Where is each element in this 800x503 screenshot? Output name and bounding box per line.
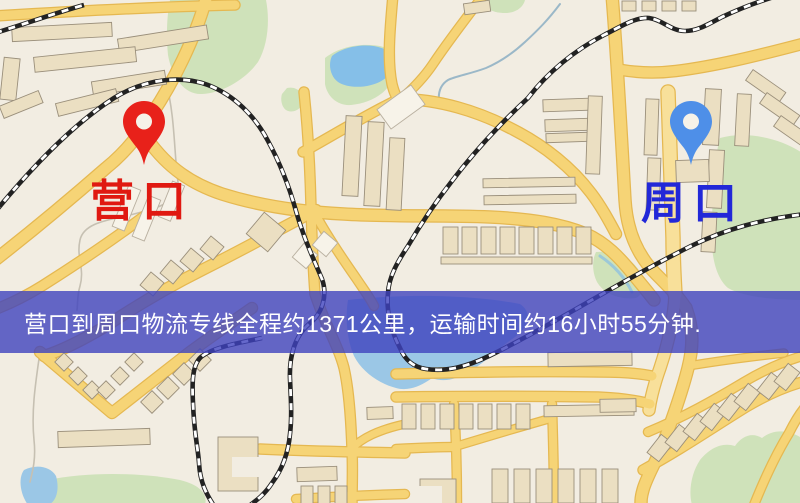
route-info-text: 营口到周口物流专线全程约1371公里，运输时间约16小时55分钟. bbox=[24, 305, 701, 339]
destination-pin-icon[interactable] bbox=[669, 100, 713, 168]
map-view: 营口 周口 营口到周口物流专线全程约1371公里，运输时间约16小时55分钟. bbox=[0, 0, 800, 503]
origin-pin-graphic bbox=[122, 100, 166, 168]
destination-pin-graphic bbox=[669, 100, 713, 168]
origin-pin-icon[interactable] bbox=[122, 100, 166, 168]
map-canvas[interactable] bbox=[0, 0, 800, 503]
destination-city-label: 周口 bbox=[641, 182, 745, 226]
origin-city-label: 营口 bbox=[90, 180, 194, 224]
route-info-banner: 营口到周口物流专线全程约1371公里，运输时间约16小时55分钟. bbox=[0, 291, 800, 353]
